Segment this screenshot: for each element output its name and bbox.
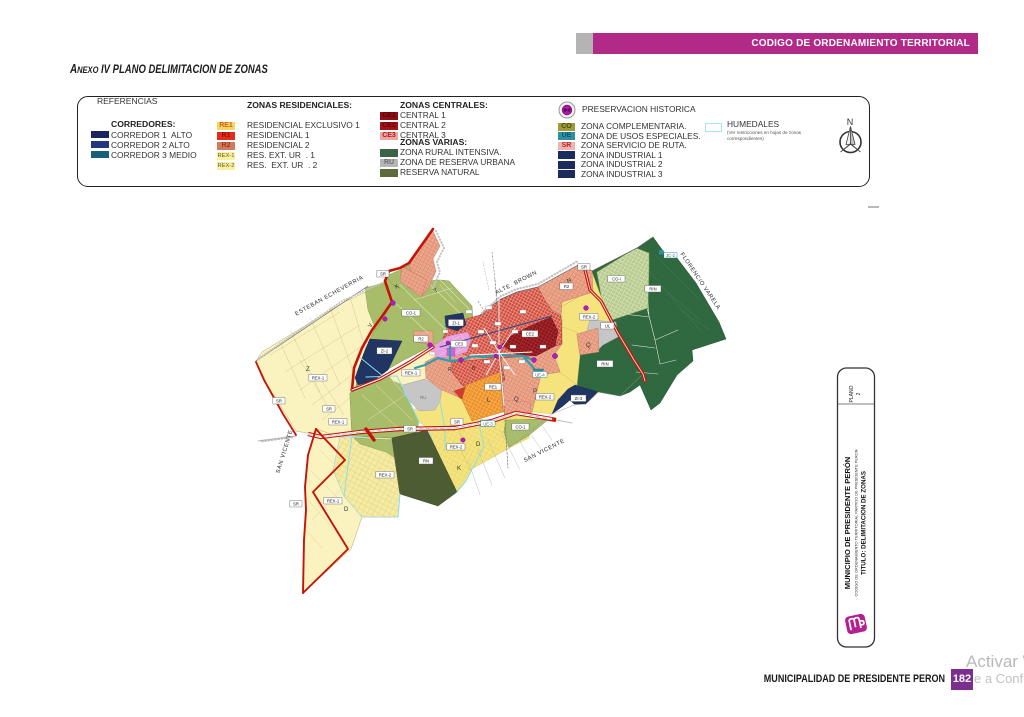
svg-text:SR: SR [276, 399, 282, 404]
svg-text:RIN: RIN [649, 287, 656, 292]
svg-text:PLANO: PLANO [849, 385, 855, 402]
svg-text:JC-2: JC-2 [666, 253, 676, 258]
svg-text:RN: RN [423, 459, 429, 464]
svg-text:D: D [476, 442, 481, 448]
svg-text:R: R [448, 367, 452, 373]
svg-text:SAN VICENTE: SAN VICENTE [276, 429, 295, 474]
svg-text:2: 2 [856, 392, 862, 395]
svg-text:CO-1: CO-1 [406, 311, 417, 316]
svg-text:ZI-1: ZI-1 [452, 321, 460, 326]
svg-text:RE1: RE1 [489, 385, 498, 390]
svg-text:SR: SR [293, 502, 299, 507]
svg-text:TITULO: DELIMITACION DE ZONAS: TITULO: DELIMITACION DE ZONAS [861, 471, 868, 575]
svg-text:CO-1: CO-1 [515, 425, 526, 430]
svg-text:UE-3: UE-3 [483, 421, 493, 426]
svg-text:MUNICIPIO DE PRESIDENTE PERÓN: MUNICIPIO DE PRESIDENTE PERÓN [843, 457, 852, 590]
svg-text:UL: UL [605, 324, 611, 329]
svg-text:R2: R2 [418, 337, 424, 342]
svg-text:REX-2: REX-2 [450, 445, 463, 450]
svg-text:REX-1: REX-1 [332, 420, 345, 425]
svg-text:REX-2: REX-2 [539, 395, 552, 400]
svg-text:SR: SR [407, 427, 413, 432]
svg-text:RU: RU [420, 395, 427, 400]
svg-text:RIN: RIN [601, 362, 608, 367]
svg-text:REX-1: REX-1 [327, 499, 340, 504]
svg-text:ZI-3: ZI-3 [575, 396, 583, 401]
svg-text:SAN VICENTE: SAN VICENTE [523, 438, 566, 464]
svg-text:REX-1: REX-1 [405, 371, 418, 376]
svg-text:SR: SR [326, 407, 332, 412]
svg-text:SR: SR [454, 420, 460, 425]
svg-text:SR: SR [380, 272, 386, 277]
svg-text:Z: Z [306, 367, 310, 373]
svg-text:REX-2: REX-2 [583, 315, 596, 320]
svg-text:D: D [344, 507, 349, 513]
svg-text:REX-1: REX-1 [312, 376, 325, 381]
svg-text:CE3: CE3 [455, 342, 464, 347]
svg-text:Q: Q [586, 343, 591, 349]
svg-text:UE-4: UE-4 [535, 372, 545, 377]
svg-text:REX-2: REX-2 [379, 473, 392, 478]
svg-text:ZI-2: ZI-2 [381, 349, 389, 354]
svg-text:SR: SR [581, 265, 587, 270]
svg-text:CODIGO DE ORDENAMIENTO TERRITO: CODIGO DE ORDENAMIENTO TERRITORIAL PARTI… [854, 449, 859, 596]
svg-text:CO-I: CO-I [612, 277, 621, 282]
svg-text:CE2: CE2 [526, 332, 535, 337]
svg-text:K: K [457, 466, 461, 472]
svg-text:Q: Q [514, 397, 519, 403]
svg-text:P: P [533, 389, 537, 395]
